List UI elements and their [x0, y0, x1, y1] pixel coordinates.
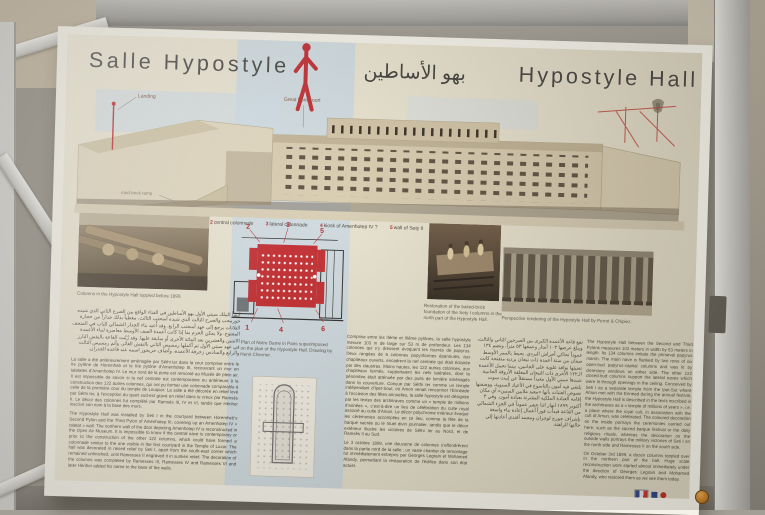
axonometric-drawing: Landing Great front-court mud-brick ramp: [74, 87, 687, 231]
svg-text:6: 6: [321, 326, 325, 333]
legend-item: 5wall of Sety II: [390, 225, 424, 232]
frame-post-left: [0, 22, 16, 510]
svg-text:3: 3: [286, 222, 290, 229]
engraving-perspective: [502, 247, 654, 315]
institution-logo-red: [660, 492, 666, 498]
frame-bracket-right: [708, 296, 726, 334]
legend-num: 2: [210, 220, 213, 226]
paragraph-english-1899: On October 3rd 1899, a dozen columns top…: [583, 450, 690, 482]
paragraph-french-left: La salle a été antérieurement aménagée p…: [70, 356, 239, 412]
caption-engraving: Perspective rendering of the Hypostyle H…: [501, 315, 651, 325]
svg-text:4: 4: [279, 327, 283, 334]
label-landing: Landing: [138, 93, 156, 100]
background-strip-far-right: [750, 0, 765, 510]
french-flag-icon: [634, 489, 648, 499]
paragraph-arabic-left: أنشأ الملك سيتي الأول بهو الأساطين في ال…: [71, 309, 240, 359]
text-block-arabic: تقع قاعة الأعمدة الكبرى بين الصرحين الثا…: [474, 338, 583, 433]
paragraph-arabic-main: تقع قاعة الأعمدة الكبرى بين الصرحين الثا…: [474, 338, 583, 430]
frame-post-right: [714, 0, 751, 510]
information-panel: Salle Hypostyle بهو الأساطين Hypostyle H…: [44, 26, 713, 515]
legend-num: 5: [390, 225, 393, 231]
plan-notre-dame: [250, 376, 317, 478]
text-block-french: Comprise entre les IIème et IIIème pylôn…: [343, 334, 471, 475]
orange-knob-icon: [695, 490, 709, 504]
caption-notre-dame-plan: Plan of Notre Dame in Paris superimposed…: [240, 340, 332, 360]
label-front-court: Great front-court: [284, 97, 321, 104]
photo-toppled-columns: [77, 213, 209, 291]
photo-excavation: [427, 223, 501, 301]
panel-surface: Salle Hypostyle بهو الأساطين Hypostyle H…: [55, 34, 703, 499]
svg-text:2: 2: [246, 224, 250, 231]
paragraph-english-left: The Hypostyle Hall was installed by Seti…: [68, 411, 238, 473]
text-block-english: The Hypostyle Hall between the Second an…: [583, 339, 693, 485]
paragraph-french-main: Comprise entre les IIème et IIIème pylôn…: [344, 334, 471, 441]
label-mud-brick-ramp: mud-brick ramp: [121, 190, 153, 196]
paragraph-french-1899: Le 3 octobre 1899, une douzaine de colon…: [343, 440, 468, 472]
plan-hypostyle-red: 235 146: [231, 217, 346, 336]
caption-toppled-columns: Columns in the Hypostyle Hall toppled be…: [77, 291, 189, 300]
svg-text:1: 1: [245, 325, 249, 332]
legend-label: wall of Sety II: [394, 225, 424, 232]
svg-text:5: 5: [320, 228, 324, 235]
institution-logos: [634, 489, 666, 499]
text-block-left: أنشأ الملك سيتي الأول بهو الأساطين في ال…: [68, 309, 241, 476]
title-english: Hypostyle Hall: [518, 63, 698, 93]
institution-logo-blue: [651, 492, 657, 498]
frame-top-bar: [0, 0, 765, 26]
paragraph-english-main: The Hypostyle Hall between the Second an…: [584, 339, 693, 451]
title-french: Salle Hypostyle: [89, 48, 290, 79]
caption-excavation: Restoration of the baked-brick foundatio…: [423, 303, 503, 323]
